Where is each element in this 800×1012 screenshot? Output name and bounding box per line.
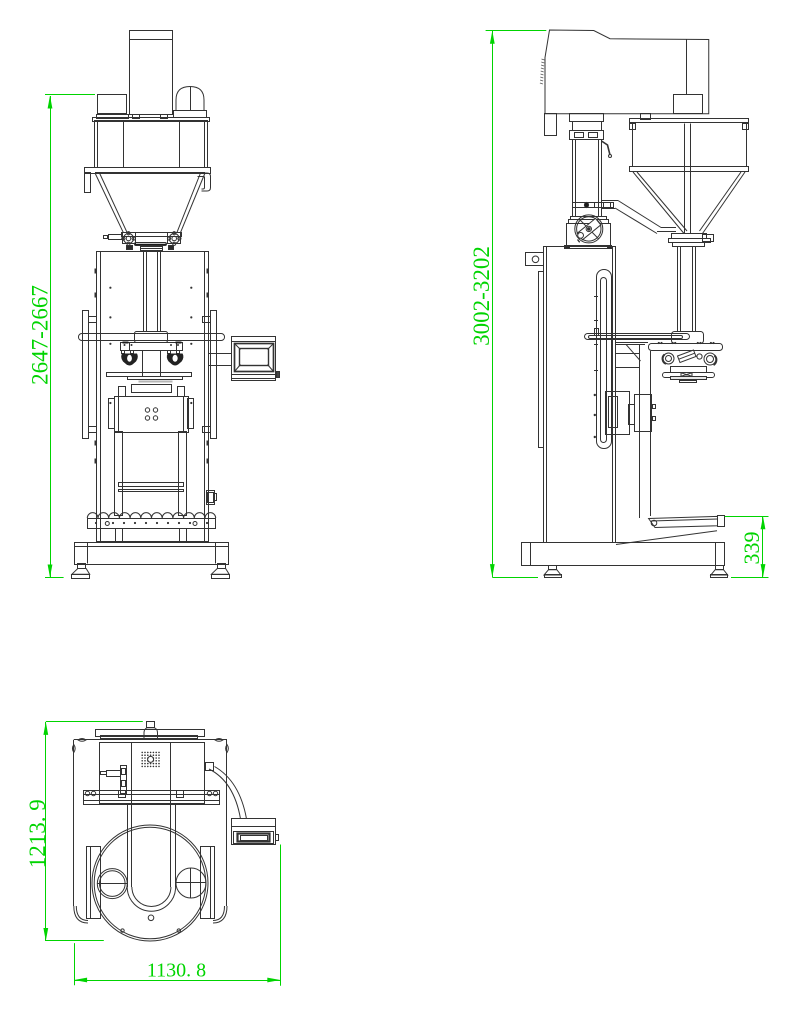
- svg-text:1130. 8: 1130. 8: [147, 959, 206, 981]
- svg-text:339: 339: [739, 532, 764, 565]
- svg-text:3002-3202: 3002-3202: [469, 246, 494, 346]
- svg-text:2647-2667: 2647-2667: [28, 285, 53, 385]
- svg-text:1213. 9: 1213. 9: [25, 799, 50, 868]
